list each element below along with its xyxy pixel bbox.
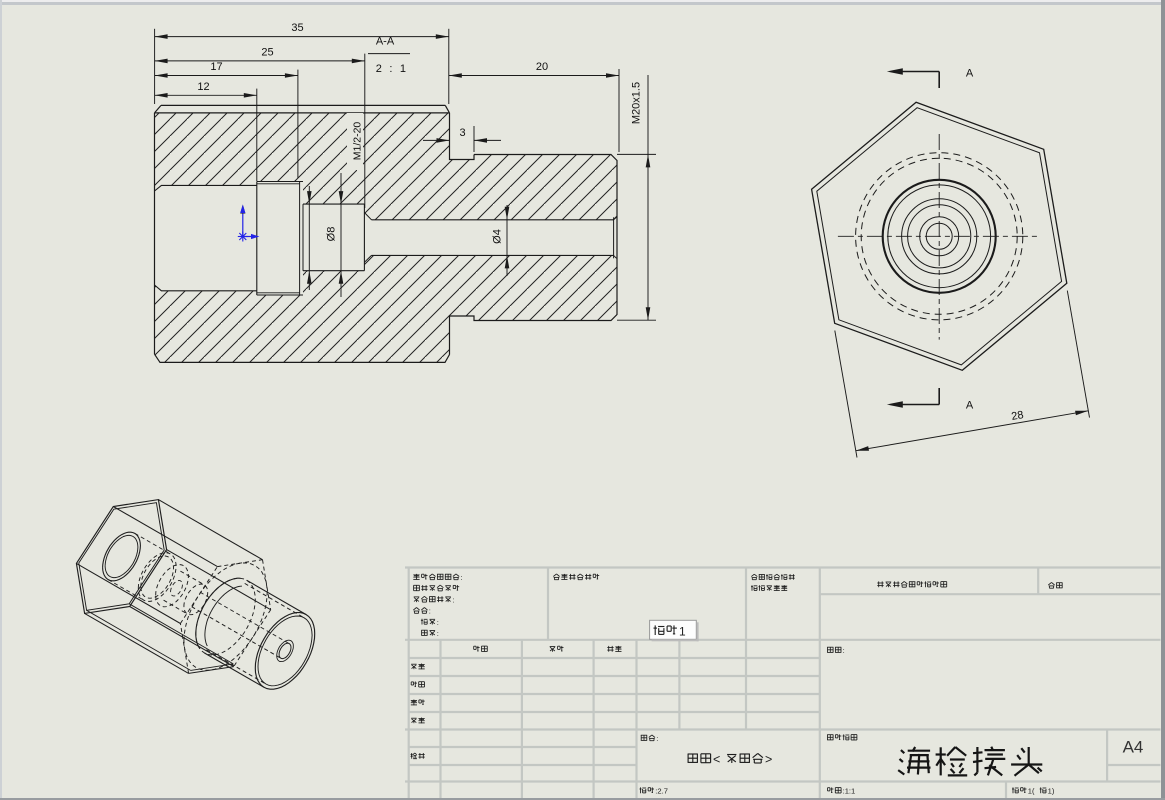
svg-text:35: 35 (291, 22, 303, 34)
svg-text:M20x1.5: M20x1.5 (631, 82, 643, 124)
svg-text:Ø4: Ø4 (492, 229, 504, 244)
svg-text::: : (437, 629, 439, 638)
svg-text:<: < (713, 753, 720, 767)
svg-text:1): 1) (1048, 787, 1055, 796)
svg-text:Ø8: Ø8 (326, 227, 338, 242)
svg-text:17: 17 (210, 61, 222, 73)
svg-text:28: 28 (1010, 409, 1024, 423)
svg-text:A: A (966, 68, 974, 80)
svg-text:1(: 1( (1028, 787, 1035, 796)
svg-text::2.7: :2.7 (655, 787, 668, 796)
svg-text:1: 1 (679, 625, 686, 639)
svg-text::1:1: :1:1 (843, 787, 856, 796)
svg-text:M1/2-20: M1/2-20 (352, 122, 364, 161)
svg-text::: : (460, 573, 462, 582)
svg-text:A: A (966, 400, 974, 412)
svg-text:A4: A4 (1123, 738, 1144, 757)
svg-text::: : (843, 646, 845, 655)
svg-text:2 : 1: 2 : 1 (376, 63, 408, 75)
svg-text::: : (453, 595, 455, 604)
svg-text::: : (429, 607, 431, 616)
svg-text:3: 3 (459, 127, 465, 139)
svg-text::: : (656, 734, 658, 743)
svg-text:12: 12 (197, 81, 209, 93)
svg-text:25: 25 (261, 47, 273, 59)
svg-text:20: 20 (536, 61, 548, 73)
svg-text::: : (437, 618, 439, 627)
svg-text:A-A: A-A (376, 36, 395, 48)
svg-text:>: > (765, 753, 772, 767)
